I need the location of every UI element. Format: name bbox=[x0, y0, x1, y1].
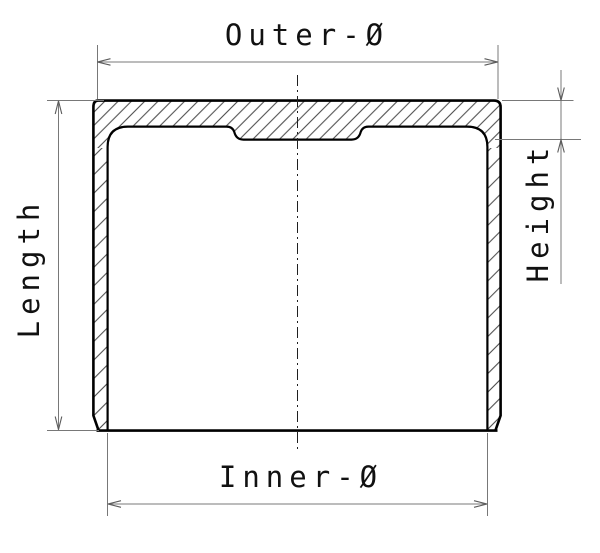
length-label: Length bbox=[12, 198, 46, 339]
left-wall-section-hatch bbox=[94, 148, 108, 430]
technical-drawing: Outer-Ø Length Height Inner-Ø bbox=[0, 0, 600, 553]
inner-diameter-label: Inner-Ø bbox=[219, 460, 383, 494]
outer-diameter-label: Outer-Ø bbox=[225, 18, 389, 52]
right-wall-section-hatch bbox=[488, 148, 501, 430]
height-label: Height bbox=[521, 142, 555, 283]
